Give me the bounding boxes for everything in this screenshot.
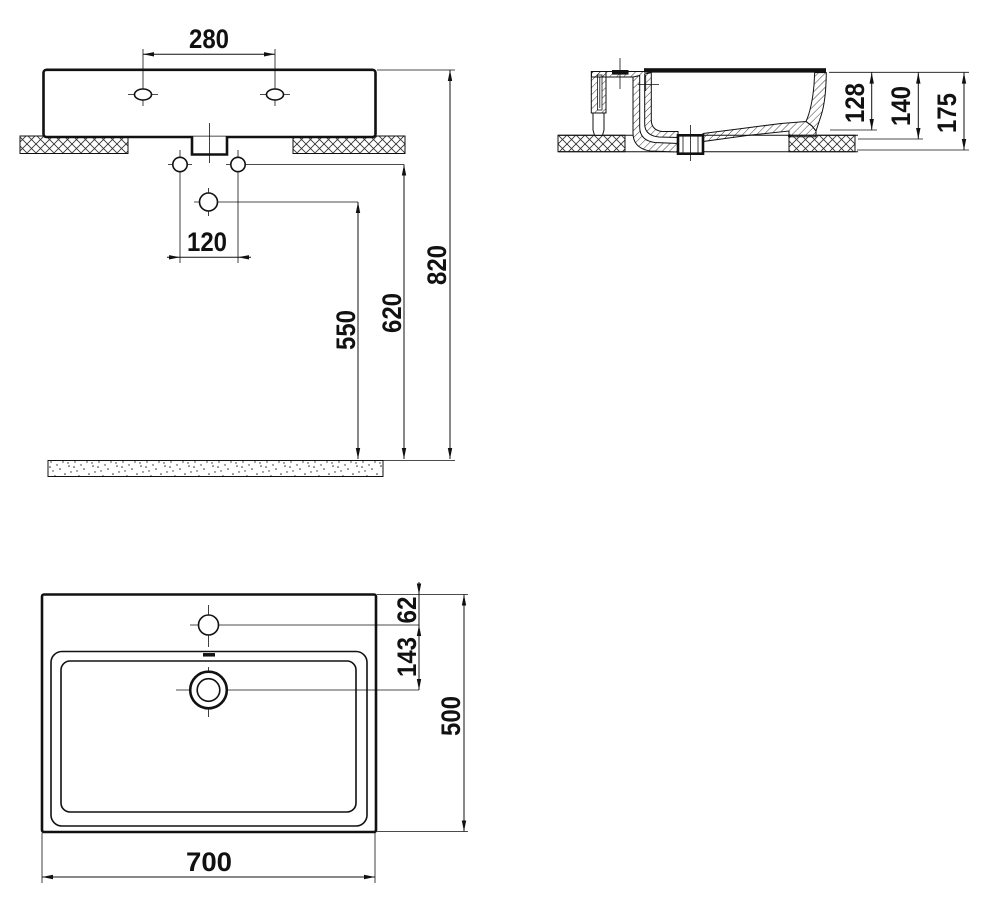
dim-arrow bbox=[962, 139, 966, 150]
dim-arrow bbox=[417, 584, 421, 595]
dim-arrow bbox=[143, 52, 154, 56]
back-wall-inner-leaf bbox=[645, 73, 678, 138]
dim-arrow bbox=[417, 679, 421, 690]
dim-drain-offset: 143 bbox=[392, 637, 422, 677]
dim-overall-width: 700 bbox=[186, 847, 232, 877]
dim-arrow bbox=[870, 119, 874, 130]
mounting-hole-right bbox=[267, 89, 284, 100]
counter-section-right bbox=[789, 135, 855, 151]
tap-hole-plan bbox=[199, 615, 219, 635]
front-foot-corner bbox=[788, 134, 791, 137]
dim-arrow bbox=[962, 73, 966, 84]
dim-overall-depth: 500 bbox=[436, 696, 466, 736]
dim-supply-hole-spacing: 120 bbox=[187, 227, 227, 257]
supply-hole-left bbox=[173, 157, 187, 171]
washbasin-technical-drawing: 280 120 550 620 820 bbox=[0, 0, 1008, 924]
technical-drawing-sheet: 280 120 550 620 820 bbox=[0, 0, 1008, 924]
dim-arrow bbox=[356, 202, 360, 213]
dim-tap-hole-spacing: 280 bbox=[189, 24, 229, 54]
dim-overall-height: 175 bbox=[932, 93, 962, 133]
plan-view: 62 143 500 700 bbox=[42, 582, 468, 883]
dim-arrow bbox=[462, 821, 466, 832]
dim-inner-depth: 128 bbox=[840, 83, 870, 123]
dim-arrow bbox=[916, 73, 920, 84]
mounting-hole-left bbox=[135, 89, 152, 100]
dim-arrow bbox=[364, 875, 375, 879]
dim-arrow bbox=[417, 625, 421, 636]
dim-tap-hole-offset: 62 bbox=[392, 597, 422, 624]
waste-outlet-hole bbox=[200, 193, 218, 211]
dim-arrow bbox=[42, 875, 53, 879]
dim-drain-outlet-height: 550 bbox=[331, 310, 361, 350]
dim-arrow bbox=[356, 448, 360, 459]
dim-supply-height: 620 bbox=[377, 293, 407, 333]
drain-inner-plan bbox=[197, 679, 220, 702]
dim-arrow bbox=[448, 70, 452, 81]
dim-arrow bbox=[462, 595, 466, 606]
dim-arrow bbox=[448, 448, 452, 459]
front-wall-section bbox=[806, 73, 826, 131]
dim-arrow bbox=[264, 52, 275, 56]
side-view: 128 140 175 bbox=[558, 58, 969, 161]
dim-arrow bbox=[169, 255, 180, 259]
counter-section-right bbox=[293, 136, 405, 154]
dim-arrow bbox=[402, 165, 406, 176]
rim-section-bar bbox=[644, 68, 826, 72]
dim-rim-height: 820 bbox=[422, 245, 452, 285]
counter-section-left bbox=[558, 135, 625, 151]
supply-hole-right bbox=[231, 157, 245, 171]
dim-arrow bbox=[916, 128, 920, 139]
dim-arrow bbox=[238, 255, 249, 259]
dim-arrow bbox=[402, 448, 406, 459]
dim-arrow bbox=[870, 73, 874, 84]
front-view: 280 120 550 620 820 bbox=[20, 24, 455, 477]
counter-section-left bbox=[20, 136, 128, 154]
dim-bowl-depth: 140 bbox=[886, 86, 916, 126]
floor-strip bbox=[48, 461, 383, 477]
skirt-foot bbox=[593, 113, 604, 135]
